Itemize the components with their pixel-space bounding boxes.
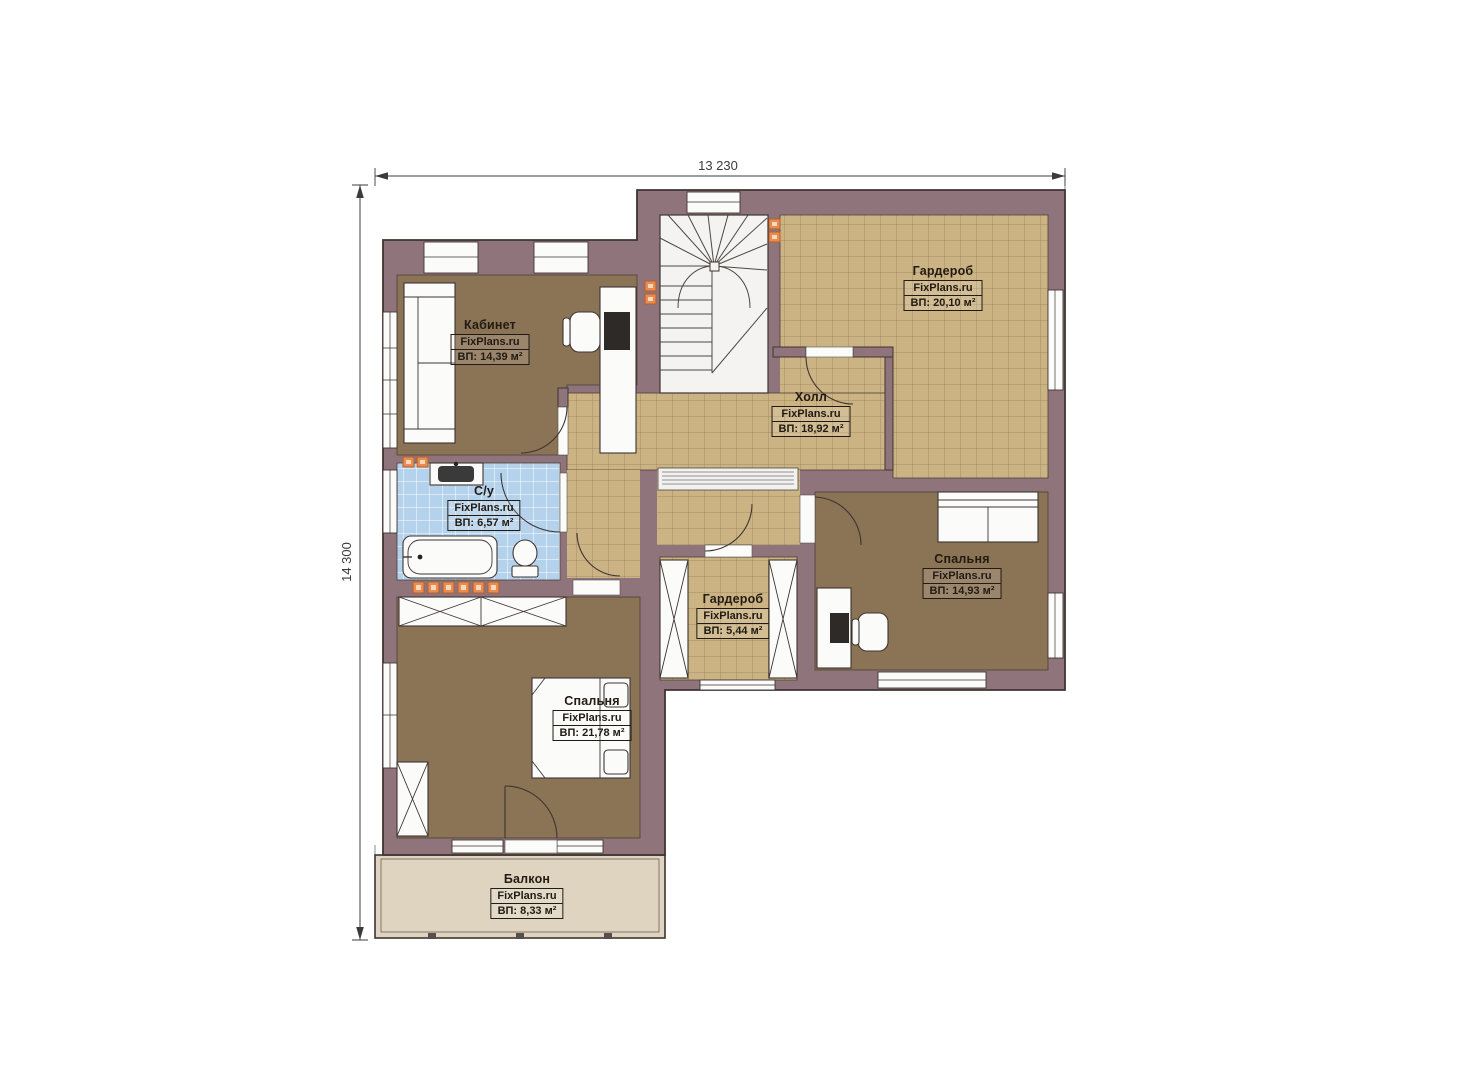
room-info-box: FixPlans.ru ВП: 14,39 м²: [451, 334, 530, 365]
room-label-su: С/у FixPlans.ru ВП: 6,57 м²: [447, 484, 520, 531]
wall-hall-wardrobe-v: [885, 357, 893, 470]
room-area: ВП: 5,44 м²: [697, 624, 768, 638]
vent-band: [658, 468, 798, 490]
room-watermark: FixPlans.ru: [452, 335, 529, 350]
window: [383, 312, 397, 448]
window: [452, 840, 503, 853]
room-watermark: FixPlans.ru: [924, 569, 1001, 584]
window: [383, 663, 397, 768]
room-area: ВП: 14,93 м²: [924, 584, 1001, 598]
room-name: С/у: [447, 484, 520, 498]
room-label-garderob-top: Гардероб FixPlans.ru ВП: 20,10 м²: [904, 264, 983, 311]
window: [700, 680, 775, 690]
room-area: ВП: 8,33 м²: [491, 904, 562, 918]
room-info-box: FixPlans.ru ВП: 14,93 м²: [923, 568, 1002, 599]
wardrobe-unit: [660, 560, 688, 678]
room-area: ВП: 6,57 м²: [448, 516, 519, 530]
light-fixture: [645, 294, 656, 304]
room-name: Спальня: [553, 694, 632, 708]
wall-office-corridor: [558, 388, 568, 407]
room-area: ВП: 20,10 м²: [905, 296, 982, 310]
dimension-height-label: 14 300: [339, 542, 354, 582]
stair-newel: [710, 262, 719, 271]
room-label-spalnya-right: Спальня FixPlans.ru ВП: 14,93 м²: [923, 552, 1002, 599]
balcony-post: [516, 933, 524, 939]
balcony-post: [604, 933, 612, 939]
monitor: [830, 613, 849, 643]
room-name: Балкон: [490, 872, 563, 886]
floor-plan-page: 13 230 14 300 Кабинет FixPlans.ru ВП: 14…: [0, 0, 1473, 1080]
corridor-floor: [567, 470, 640, 578]
room-area: ВП: 14,39 м²: [452, 350, 529, 364]
light-fixture: [473, 582, 484, 593]
sofa: [404, 283, 455, 443]
room-info-box: FixPlans.ru ВП: 5,44 м²: [696, 608, 769, 639]
room-info-box: FixPlans.ru ВП: 8,33 м²: [490, 888, 563, 919]
room-watermark: FixPlans.ru: [773, 407, 850, 422]
light-fixture: [403, 457, 414, 467]
bathroom-sink: [430, 462, 483, 485]
window: [383, 470, 397, 533]
light-fixture: [417, 457, 428, 467]
monitor: [604, 312, 630, 350]
wardrobe-unit: [399, 597, 566, 626]
light-fixture: [413, 582, 424, 593]
room-name: Холл: [772, 390, 851, 404]
pillow: [604, 750, 628, 774]
bed: [938, 492, 1038, 542]
room-label-kabinet: Кабинет FixPlans.ru ВП: 14,39 м²: [451, 318, 530, 365]
light-fixture: [458, 582, 469, 593]
light-fixture: [428, 582, 439, 593]
light-fixture: [769, 219, 780, 229]
toilet: [512, 540, 538, 577]
light-fixture: [443, 582, 454, 593]
window: [878, 672, 986, 688]
room-label-holl: Холл FixPlans.ru ВП: 18,92 м²: [772, 390, 851, 437]
room-info-box: FixPlans.ru ВП: 18,92 м²: [772, 406, 851, 437]
room-label-spalnya-bottom: Спальня FixPlans.ru ВП: 21,78 м²: [553, 694, 632, 741]
window: [557, 840, 603, 853]
desk: [600, 287, 636, 453]
dimension-left: 14 300: [339, 185, 368, 940]
room-watermark: FixPlans.ru: [448, 501, 519, 516]
room-info-box: FixPlans.ru ВП: 6,57 м²: [447, 500, 520, 531]
balcony-post: [428, 933, 436, 939]
wardrobe-unit: [769, 560, 797, 678]
room-info-box: FixPlans.ru ВП: 20,10 м²: [904, 280, 983, 311]
room-label-balkon: Балкон FixPlans.ru ВП: 8,33 м²: [490, 872, 563, 919]
room-name: Кабинет: [451, 318, 530, 332]
room-label-garderob-mid: Гардероб FixPlans.ru ВП: 5,44 м²: [696, 592, 769, 639]
wall-hall-wardrobe: [773, 347, 806, 357]
room-watermark: FixPlans.ru: [554, 711, 631, 726]
stairs: [660, 215, 768, 393]
window: [1048, 290, 1063, 390]
room-area: ВП: 18,92 м²: [773, 422, 850, 436]
light-fixture: [645, 281, 656, 291]
room-area: ВП: 21,78 м²: [554, 726, 631, 740]
wardrobe-unit: [397, 762, 428, 836]
hall-floor-upper: [780, 357, 893, 393]
room-name: Гардероб: [696, 592, 769, 606]
office-chair: [852, 613, 888, 651]
stairwell: [660, 215, 768, 393]
room-watermark: FixPlans.ru: [697, 609, 768, 624]
office-chair: [563, 312, 600, 352]
window: [534, 242, 588, 273]
dimension-width-label: 13 230: [698, 158, 738, 173]
floor-plan-drawing: 13 230 14 300: [0, 0, 1473, 1080]
room-name: Спальня: [923, 552, 1002, 566]
room-watermark: FixPlans.ru: [491, 889, 562, 904]
room-watermark: FixPlans.ru: [905, 281, 982, 296]
bathtub: [403, 536, 497, 578]
room-name: Гардероб: [904, 264, 983, 278]
light-fixture: [488, 582, 499, 593]
window: [687, 192, 740, 213]
wall-hall-wardrobe: [853, 347, 893, 357]
window: [1048, 593, 1063, 658]
room-info-box: FixPlans.ru ВП: 21,78 м²: [553, 710, 632, 741]
light-fixture: [769, 232, 780, 242]
window: [424, 242, 478, 273]
